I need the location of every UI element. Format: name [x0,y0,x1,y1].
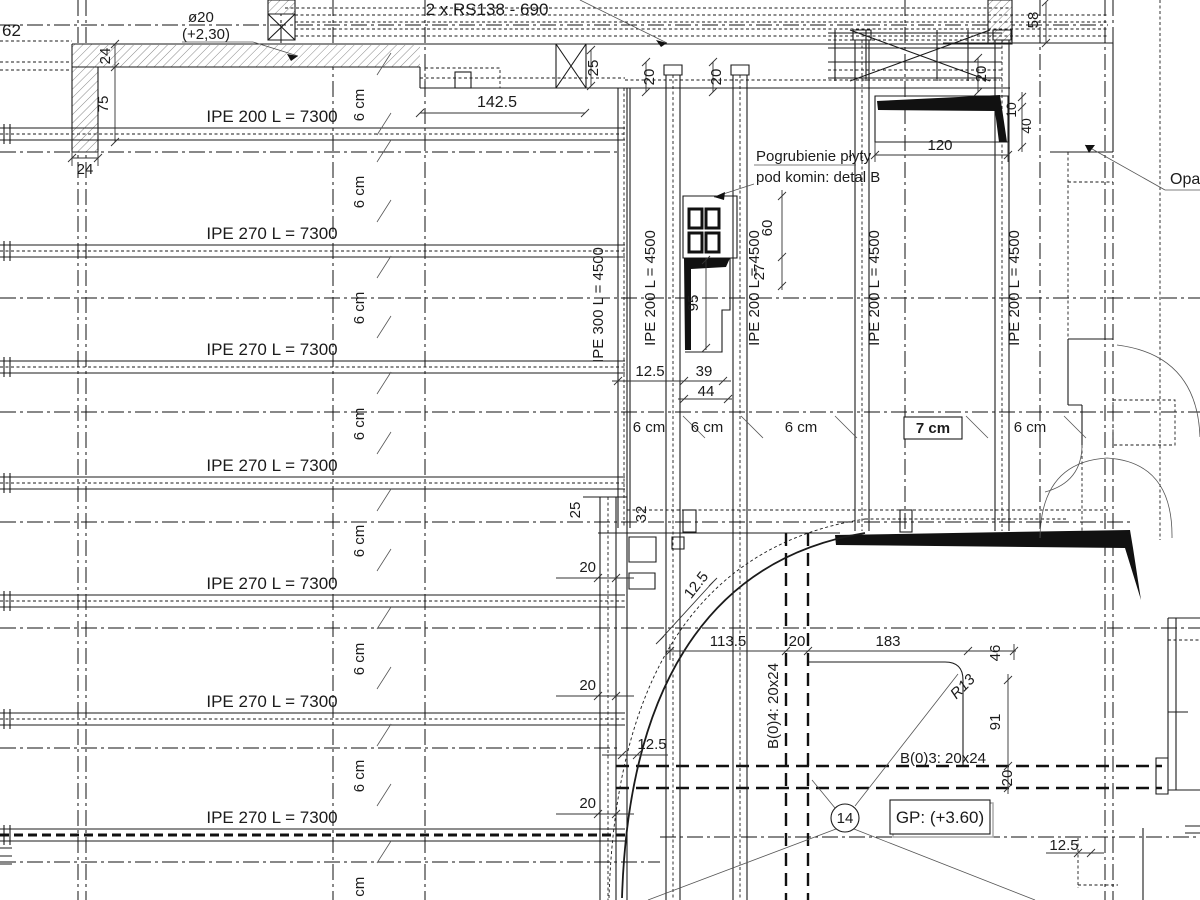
grid-mark-62: 62 [2,21,21,40]
floor-plan-canvas: 62 ø20 (+2,30) 2 x RS138 - 690 24 75 24 … [0,0,1200,900]
dim-20-w3: 20 [579,795,596,812]
dim-58: 58 [1025,12,1042,29]
floor-plan-drawing: 62 ø20 (+2,30) 2 x RS138 - 690 24 75 24 … [0,0,1200,900]
slab-slash-marks [377,53,1086,863]
dim-46: 46 [987,645,1004,662]
dim-12-5-chimney: 12.5 [635,363,664,380]
dim-60: 60 [759,220,776,237]
curved-wall-solid [622,533,865,898]
dim-40: 40 [1018,118,1034,134]
beam-label-row2: IPE 270 L = 7300 [206,224,337,243]
dim-20-b: 20 [708,69,725,86]
vbeam-label-2: IPE 200 L = 4500 [746,230,763,346]
slab-row-3: 6 cm [785,419,818,436]
chimney-detail [683,196,737,352]
support-note: Opar [1170,171,1200,188]
door-swing-arc-lower [1040,458,1172,538]
column-hatch [268,0,295,14]
dim-12-5-br: 12.5 [1049,837,1078,854]
dim-20-w2: 20 [579,677,596,694]
dim-20-w1: 20 [579,559,596,576]
dim-12-5-curve: 12.5 [681,568,712,601]
dim-10: 10 [1003,102,1019,118]
grid-bubble-number: 14 [837,810,854,827]
dim-44: 44 [698,383,715,400]
chimney-note-line2: pod komin: detal B [756,169,880,186]
beam-label-row4: IPE 270 L = 7300 [206,456,337,475]
slab-row-5: 6 cm [1014,419,1047,436]
flue-opening [689,233,702,252]
beam-label-row3: IPE 270 L = 7300 [206,340,337,359]
beam-b03-label: B(0)3: 20x24 [900,750,986,767]
slab-6cm-8: 6 cm [351,877,368,900]
slab-6cm-6: 6 cm [351,643,368,676]
dim-27: 27 [751,264,768,281]
slab-6cm-7: 6 cm [351,760,368,793]
radius-r13-label: R13 [947,671,979,703]
steel-wedges [835,95,1141,600]
flue-opening [706,233,719,252]
dim-20-e: 20 [999,770,1016,787]
dim-20-a: 20 [641,69,658,86]
rebar-level-label: (+2,30) [182,26,230,43]
door-swing-arc-upper [1117,345,1200,437]
slab-6cm-2: 6 cm [351,176,368,209]
beam-label-row5: IPE 270 L = 7300 [206,574,337,593]
flue-opening [706,209,719,228]
slab-row-2: 6 cm [691,419,724,436]
lintel-wedge-bottom [835,530,1141,600]
rs138-note: 2 x RS138 - 690 [426,0,549,19]
dim-12-5-wall: 12.5 [637,736,666,753]
chimney-note-line1: Pogrubienie płyty [756,148,872,165]
level-mark-text: GP: (+3.60) [896,808,984,827]
vbeam-label-ipe300: IPE 300 L = 4500 [590,247,607,363]
dim-32: 32 [633,506,650,523]
beam-label-row7: IPE 270 L = 7300 [206,808,337,827]
wall-lines [0,0,1200,900]
dim-39: 39 [696,363,713,380]
pier-hatch-b [900,510,912,532]
dim-95: 95 [685,295,702,312]
beam-label-row1: IPE 200 L = 7300 [206,107,337,126]
slab-6cm-4: 6 cm [351,408,368,441]
lintel-wedge-top [877,95,1007,142]
curved-wall-dashed [609,519,1068,898]
dim-25-wall: 25 [567,502,584,519]
flue-opening [689,209,702,228]
pier-hatch-a [683,510,696,532]
dim-25-top: 25 [585,60,602,77]
vbeam-label-4: IPE 200 L = 4500 [1006,230,1023,346]
dim-24-bottom: 24 [77,161,94,178]
beam-label-row6: IPE 270 L = 7300 [206,692,337,711]
dim-183: 183 [875,633,900,650]
small-pier-hatch [455,72,471,88]
top-wall-hatch [72,45,420,67]
dim-142-5: 142.5 [477,94,517,111]
dim-120: 120 [927,137,952,154]
dim-91: 91 [987,714,1004,731]
slab-row-4: 7 cm [916,420,950,437]
slab-row-1: 6 cm [633,419,666,436]
dim-20-d: 20 [789,633,806,650]
dim-113-5: 113.5 [710,633,746,650]
dim-75: 75 [95,96,112,113]
dim-24-top: 24 [97,48,114,65]
wall-fillet-arc [1045,445,1082,492]
slab-6cm-1: 6 cm [351,89,368,122]
vbeam-label-1: IPE 200 L = 4500 [642,230,659,346]
vbeam-label-3: IPE 200 L = 4500 [866,230,883,346]
dim-20-c: 20 [973,66,990,83]
slab-6cm-3: 6 cm [351,292,368,325]
slab-6cm-5: 6 cm [351,525,368,558]
rebar-dia-label: ø20 [188,9,214,26]
beam-b04-label: B(0)4: 20x24 [765,663,782,749]
